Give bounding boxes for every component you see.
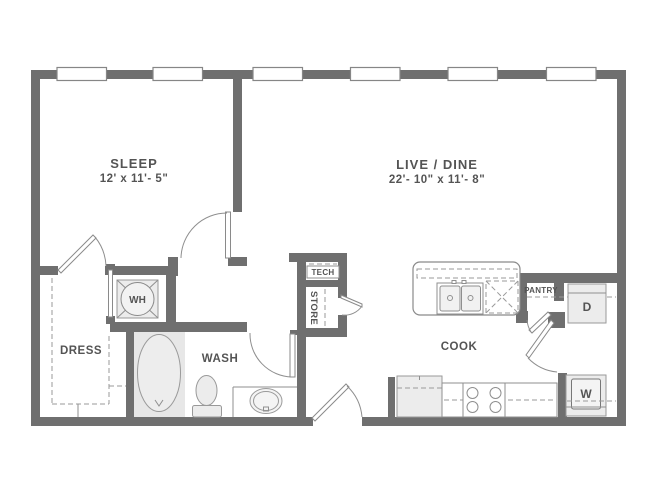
walls xyxy=(31,70,626,426)
kitchen-island xyxy=(413,262,520,315)
entry-door-arc xyxy=(347,386,362,417)
tech-label: TECH xyxy=(312,268,335,277)
dress-door-icon xyxy=(58,235,96,273)
sink-faucet-icon xyxy=(462,281,466,284)
bathtub-icon xyxy=(138,335,181,412)
store-door-icon xyxy=(341,295,362,307)
wash-door-arc xyxy=(250,333,292,377)
water-heater: WH xyxy=(117,280,158,318)
wash-door-icon xyxy=(290,334,295,377)
water-heater-label: WH xyxy=(129,295,146,306)
sleep-door-arc xyxy=(181,213,227,258)
pantry-label: PANTRY xyxy=(524,286,558,295)
toilet-bowl-icon xyxy=(196,376,217,406)
wh-closet-door-icon xyxy=(109,270,113,317)
window-icon xyxy=(547,68,597,81)
washer-label: W xyxy=(580,387,592,401)
sink-basin-right xyxy=(462,286,481,311)
wash-label: WASH xyxy=(202,353,239,365)
sink-basin-left xyxy=(440,286,460,311)
kitchen-run xyxy=(397,376,557,417)
window-icon xyxy=(351,68,401,81)
sleep-dims: 12' x 11'- 5" xyxy=(100,173,169,185)
store-label: STORE xyxy=(308,291,319,325)
store-door-arc xyxy=(342,306,362,315)
window-icon xyxy=(153,68,203,81)
bathroom-fixtures xyxy=(134,332,297,417)
fridge-icon xyxy=(397,376,442,417)
sleep-door-icon xyxy=(226,212,231,258)
bath-sink-icon xyxy=(250,389,282,414)
cook-label: COOK xyxy=(441,341,478,353)
live-dine-dims: 22'- 10" x 11'- 8" xyxy=(389,174,485,186)
dryer-label: D xyxy=(583,300,592,314)
floor-plan-svg: WH TECH STORE xyxy=(0,0,650,490)
dress-label: DRESS xyxy=(60,345,102,357)
window-icon xyxy=(57,68,107,81)
sleep-label: SLEEP xyxy=(110,156,158,171)
entry-door-icon xyxy=(312,384,349,421)
laundry-door-arc xyxy=(528,358,557,372)
window-icon xyxy=(448,68,498,81)
dress-door-arc xyxy=(95,237,106,266)
floor-plan: WH TECH STORE xyxy=(0,0,650,490)
live-dine-label: LIVE / DINE xyxy=(396,157,478,172)
sink-faucet-icon xyxy=(452,281,456,284)
tech-store: TECH STORE xyxy=(307,264,339,327)
toilet-tank-icon xyxy=(193,406,222,418)
window-icon xyxy=(253,68,303,81)
